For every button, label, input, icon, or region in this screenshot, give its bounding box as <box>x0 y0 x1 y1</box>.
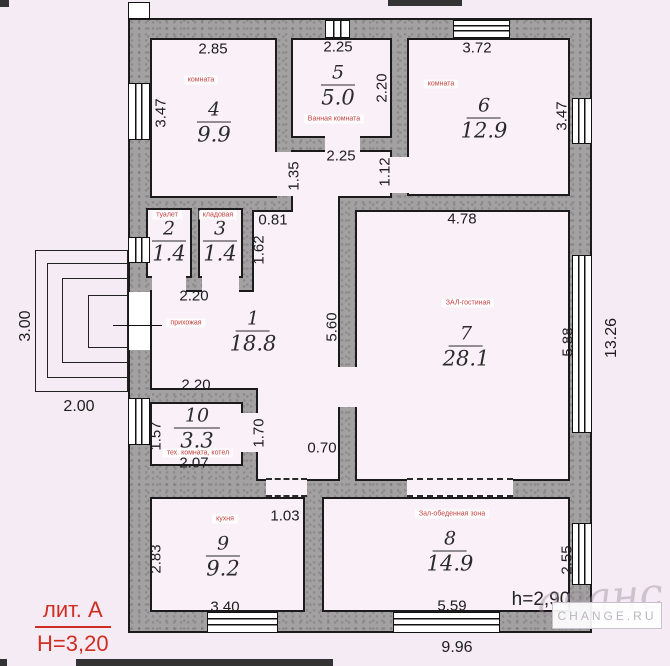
room-2-label: 21.4 <box>152 220 186 265</box>
dimension-label: 2.20 <box>374 73 391 102</box>
dimension-label: 9.96 <box>441 639 472 657</box>
scan-artifact <box>0 0 9 7</box>
room-5-label: 55.0 <box>321 64 355 109</box>
scan-artifact <box>76 659 333 666</box>
litera-label: лит. А <box>35 597 111 628</box>
dimension-label: 5.88 <box>560 327 577 356</box>
passage-living-dining <box>407 478 513 497</box>
room-9-label: 99.2 <box>206 535 240 580</box>
chimney-block <box>128 2 150 19</box>
door-opening-room-7 <box>338 367 357 407</box>
room-8-label: 814.9 <box>427 530 474 575</box>
scan-artifact <box>0 659 7 666</box>
room-1-name: прихожая <box>166 319 205 328</box>
dimension-label: 1.57 <box>148 421 165 450</box>
dimension-label: 2.20 <box>179 288 208 305</box>
scan-artifact <box>388 0 462 6</box>
dimension-label: 2.20 <box>181 377 210 394</box>
room-7-label: 728.1 <box>443 325 490 370</box>
passage-hall-kitchen <box>266 478 307 497</box>
dimension-label: 3.72 <box>462 40 491 57</box>
room-1-label: 118.8 <box>230 310 277 355</box>
dimension-label: 5.60 <box>324 312 341 341</box>
room-2-name: туалет <box>152 211 182 220</box>
room-4-label: 49.9 <box>197 101 231 146</box>
dimension-label: 0.81 <box>258 212 287 229</box>
dimension-label: 2.85 <box>198 41 227 58</box>
dimension-label: 2.55 <box>559 545 576 574</box>
dimension-label: 4.78 <box>447 211 476 228</box>
litera-block: лит. А Н=3,20 <box>35 597 111 657</box>
dimension-label: 1.35 <box>286 161 303 190</box>
dimension-label: 1.12 <box>377 157 394 186</box>
dimension-label: 13.26 <box>603 318 621 358</box>
room-8-name: Зал-обеденная зона <box>415 510 489 519</box>
window-top-room6 <box>453 20 510 38</box>
dimension-label: 3.47 <box>153 98 170 127</box>
room-1-corridor-mid <box>291 198 340 290</box>
dimension-label: 1.70 <box>251 418 268 447</box>
dimension-label: 0.70 <box>307 440 336 457</box>
room-4-name: комната <box>184 76 218 85</box>
porch-step-outline <box>88 295 128 348</box>
room-1-hall-lower <box>256 390 340 481</box>
dimension-label: 1.03 <box>270 508 299 525</box>
dimension-label: 3.47 <box>554 101 571 130</box>
dimension-label: 2.25 <box>326 148 355 165</box>
room-10-name: тех. комната, котел <box>163 449 233 458</box>
building-height-label: Н=3,20 <box>35 628 111 657</box>
room-9-name: кухня <box>212 515 238 524</box>
window-right-room6 <box>572 98 592 144</box>
window-left-toilet <box>128 237 150 263</box>
watermark-site: CHANGE.RU <box>552 602 662 629</box>
room-7-name: ЗАЛ-гостиная <box>442 299 494 308</box>
dimension-label: 5.59 <box>437 598 466 615</box>
wall-opening <box>288 212 294 288</box>
wall-opening <box>258 387 338 393</box>
dimension-label: 2.83 <box>148 544 165 573</box>
room-10-label: 103.3 <box>174 407 220 452</box>
room-6-label: 612.9 <box>461 97 508 142</box>
entry-door-opening <box>129 292 150 350</box>
wall-opening <box>254 287 338 293</box>
window-top-bath <box>325 20 350 38</box>
room-5-name: Ванная комната <box>304 115 364 124</box>
dimension-label: 3.00 <box>17 310 35 341</box>
room-6-name: комната <box>424 80 458 89</box>
dimension-label: 3.40 <box>210 599 239 616</box>
entry-door-line <box>113 325 162 326</box>
window-bottom-dining <box>393 612 500 633</box>
room-3-name: кладовая <box>199 211 237 220</box>
room-3-label: 31.4 <box>203 220 237 265</box>
window-left-room4 <box>128 83 150 140</box>
dimension-label: 2.00 <box>63 398 94 416</box>
dimension-label: 2.25 <box>323 39 352 56</box>
floor-plan: 2.85 2.25 3.72 3.47 2.20 3.47 2.25 1.12 … <box>0 0 670 666</box>
dimension-label: 1.62 <box>251 235 268 264</box>
wall-opening <box>293 195 338 203</box>
